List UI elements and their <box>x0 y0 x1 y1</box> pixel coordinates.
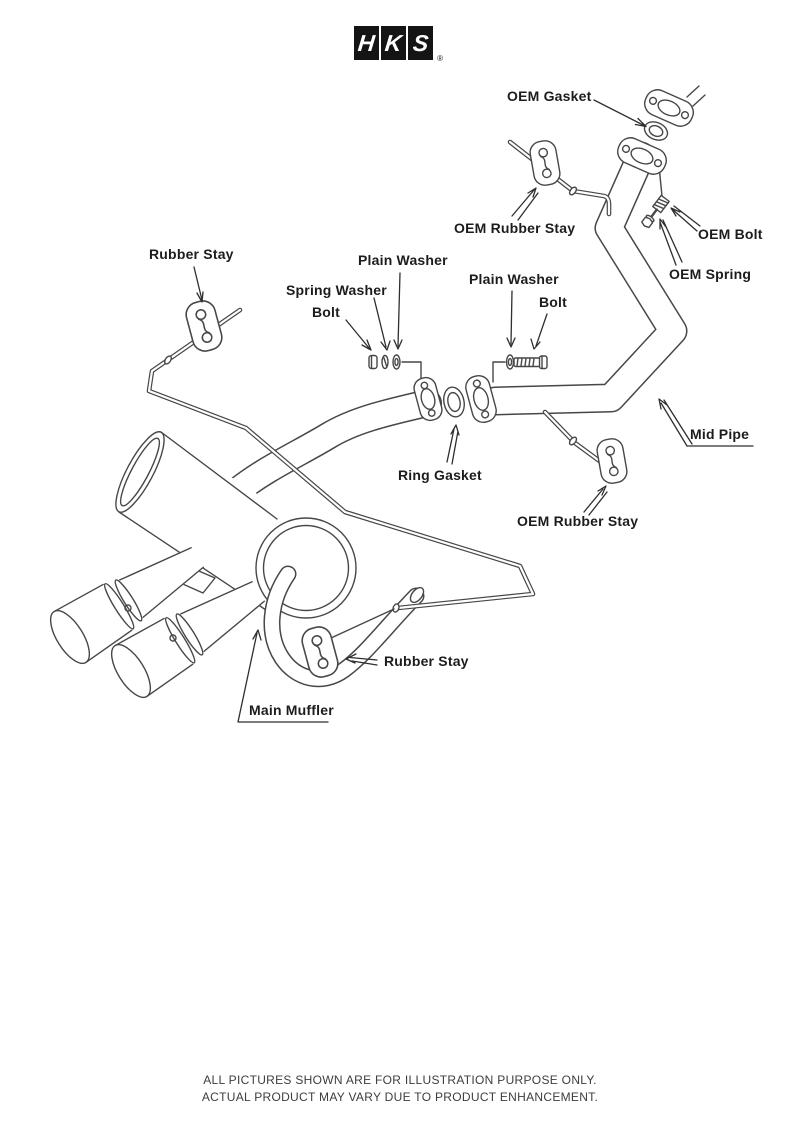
oem-rubber-stay-bottom-part <box>595 437 628 485</box>
disclaimer: ALL PICTURES SHOWN ARE FOR ILLUSTRATION … <box>0 1072 800 1106</box>
label-main-muffler: Main Muffler <box>249 702 334 718</box>
label-oem-rubber-stay-top: OEM Rubber Stay <box>454 220 575 236</box>
hardware-bracket-right <box>493 362 505 382</box>
disclaimer-line-1: ALL PICTURES SHOWN ARE FOR ILLUSTRATION … <box>0 1072 800 1089</box>
spring-washer-part <box>382 356 388 369</box>
diagram-page: { "logo": { "letters": ["H", "K", "S"], … <box>0 0 800 1132</box>
label-oem-spring: OEM Spring <box>669 266 751 282</box>
label-ring-gasket: Ring Gasket <box>398 467 482 483</box>
label-bolt-left: Bolt <box>312 304 340 320</box>
label-plain-washer-right: Plain Washer <box>469 271 559 287</box>
label-oem-bolt: OEM Bolt <box>698 226 763 242</box>
label-rubber-stay-left: Rubber Stay <box>149 246 234 262</box>
plain-washer-left-part <box>393 355 400 369</box>
oem-gasket-part <box>642 118 671 143</box>
exhaust-system-diagram <box>0 0 800 1132</box>
bolt-left-part <box>369 356 377 369</box>
label-plain-washer-left: Plain Washer <box>358 252 448 268</box>
label-rubber-stay-bottom: Rubber Stay <box>384 653 469 669</box>
label-oem-gasket: OEM Gasket <box>507 88 591 104</box>
disclaimer-line-2: ACTUAL PRODUCT MAY VARY DUE TO PRODUCT E… <box>0 1089 800 1106</box>
plain-washer-right-part <box>507 355 514 369</box>
bolt-right-part <box>514 356 547 369</box>
label-bolt-right: Bolt <box>539 294 567 310</box>
ring-gasket-part <box>441 385 467 419</box>
label-oem-rubber-stay-bottom: OEM Rubber Stay <box>517 513 638 529</box>
oem-rubber-stay-top-part <box>528 139 561 187</box>
label-spring-washer: Spring Washer <box>286 282 387 298</box>
label-mid-pipe: Mid Pipe <box>690 426 749 442</box>
